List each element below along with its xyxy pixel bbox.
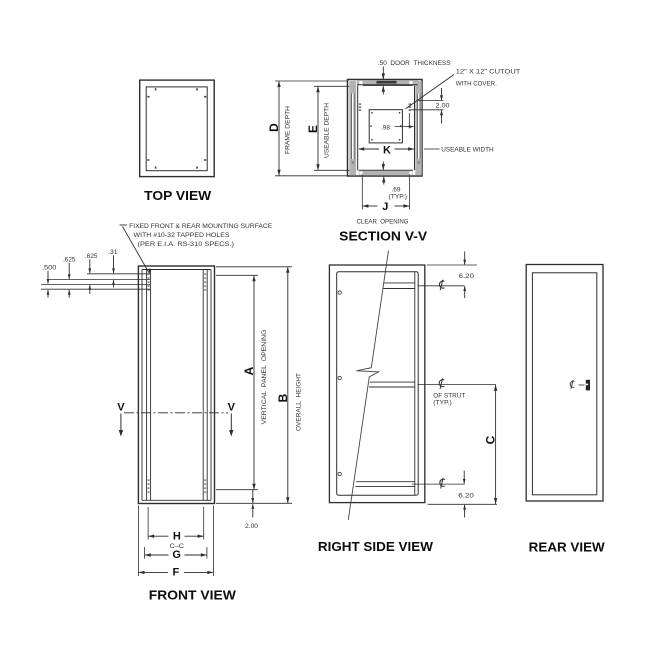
svg-text:WITH #10-32 TAPPED HOLES: WITH #10-32 TAPPED HOLES	[134, 232, 231, 239]
svg-text:2.00: 2.00	[436, 103, 450, 110]
svg-text:H: H	[173, 530, 181, 542]
svg-text:VERTICAL PANEL OPENING: VERTICAL PANEL OPENING	[261, 330, 268, 425]
svg-text:A: A	[242, 366, 256, 375]
svg-text:SECTION V-V: SECTION V-V	[339, 229, 427, 244]
svg-text:12" X 12" CUTOUT: 12" X 12" CUTOUT	[456, 69, 521, 76]
svg-text:6.20: 6.20	[459, 273, 475, 280]
svg-text:.625: .625	[63, 257, 76, 264]
svg-text:.69: .69	[392, 187, 401, 194]
svg-text:RIGHT SIDE VIEW: RIGHT SIDE VIEW	[318, 540, 433, 554]
svg-text:.31: .31	[108, 249, 118, 256]
svg-text:CLEAR OPENING: CLEAR OPENING	[357, 218, 409, 225]
svg-text:K: K	[383, 144, 391, 156]
svg-text:F: F	[173, 567, 180, 579]
svg-text:FRAME DEPTH: FRAME DEPTH	[285, 106, 292, 154]
svg-text:.50 DOOR THICKNESS: .50 DOOR THICKNESS	[378, 60, 451, 67]
svg-text:J: J	[382, 201, 388, 213]
svg-text:USEABLE WIDTH: USEABLE WIDTH	[441, 146, 494, 153]
svg-text:WITH COVER.: WITH COVER.	[456, 81, 497, 88]
svg-text:USEABLE DEPTH: USEABLE DEPTH	[324, 103, 331, 158]
svg-text:OVERALL HEIGHT: OVERALL HEIGHT	[296, 373, 303, 431]
svg-text:.500: .500	[42, 265, 57, 272]
svg-text:2.00: 2.00	[245, 523, 258, 530]
svg-text:G: G	[172, 549, 181, 561]
svg-text:(TYP.): (TYP.)	[389, 194, 408, 201]
svg-text:OF STRUT: OF STRUT	[433, 393, 465, 400]
svg-text:B: B	[276, 393, 290, 402]
svg-text:.98: .98	[381, 125, 390, 132]
svg-text:V: V	[228, 402, 236, 414]
svg-text:(TYP.): (TYP.)	[433, 400, 452, 407]
svg-text:6.20: 6.20	[458, 493, 474, 500]
svg-text:FIXED FRONT & REAR MOUNTING SU: FIXED FRONT & REAR MOUNTING SURFACE	[129, 223, 273, 230]
svg-text:E: E	[306, 125, 320, 133]
svg-text:.625: .625	[85, 253, 98, 260]
svg-text:TOP VIEW: TOP VIEW	[144, 189, 211, 203]
svg-text:C: C	[483, 435, 497, 444]
svg-text:D: D	[267, 123, 281, 132]
svg-text:FRONT VIEW: FRONT VIEW	[149, 588, 236, 602]
svg-text:V: V	[117, 402, 125, 414]
svg-text:(PER E.I.A. RS-310 SPECS.): (PER E.I.A. RS-310 SPECS.)	[138, 241, 235, 248]
svg-text:REAR VIEW: REAR VIEW	[529, 541, 605, 555]
